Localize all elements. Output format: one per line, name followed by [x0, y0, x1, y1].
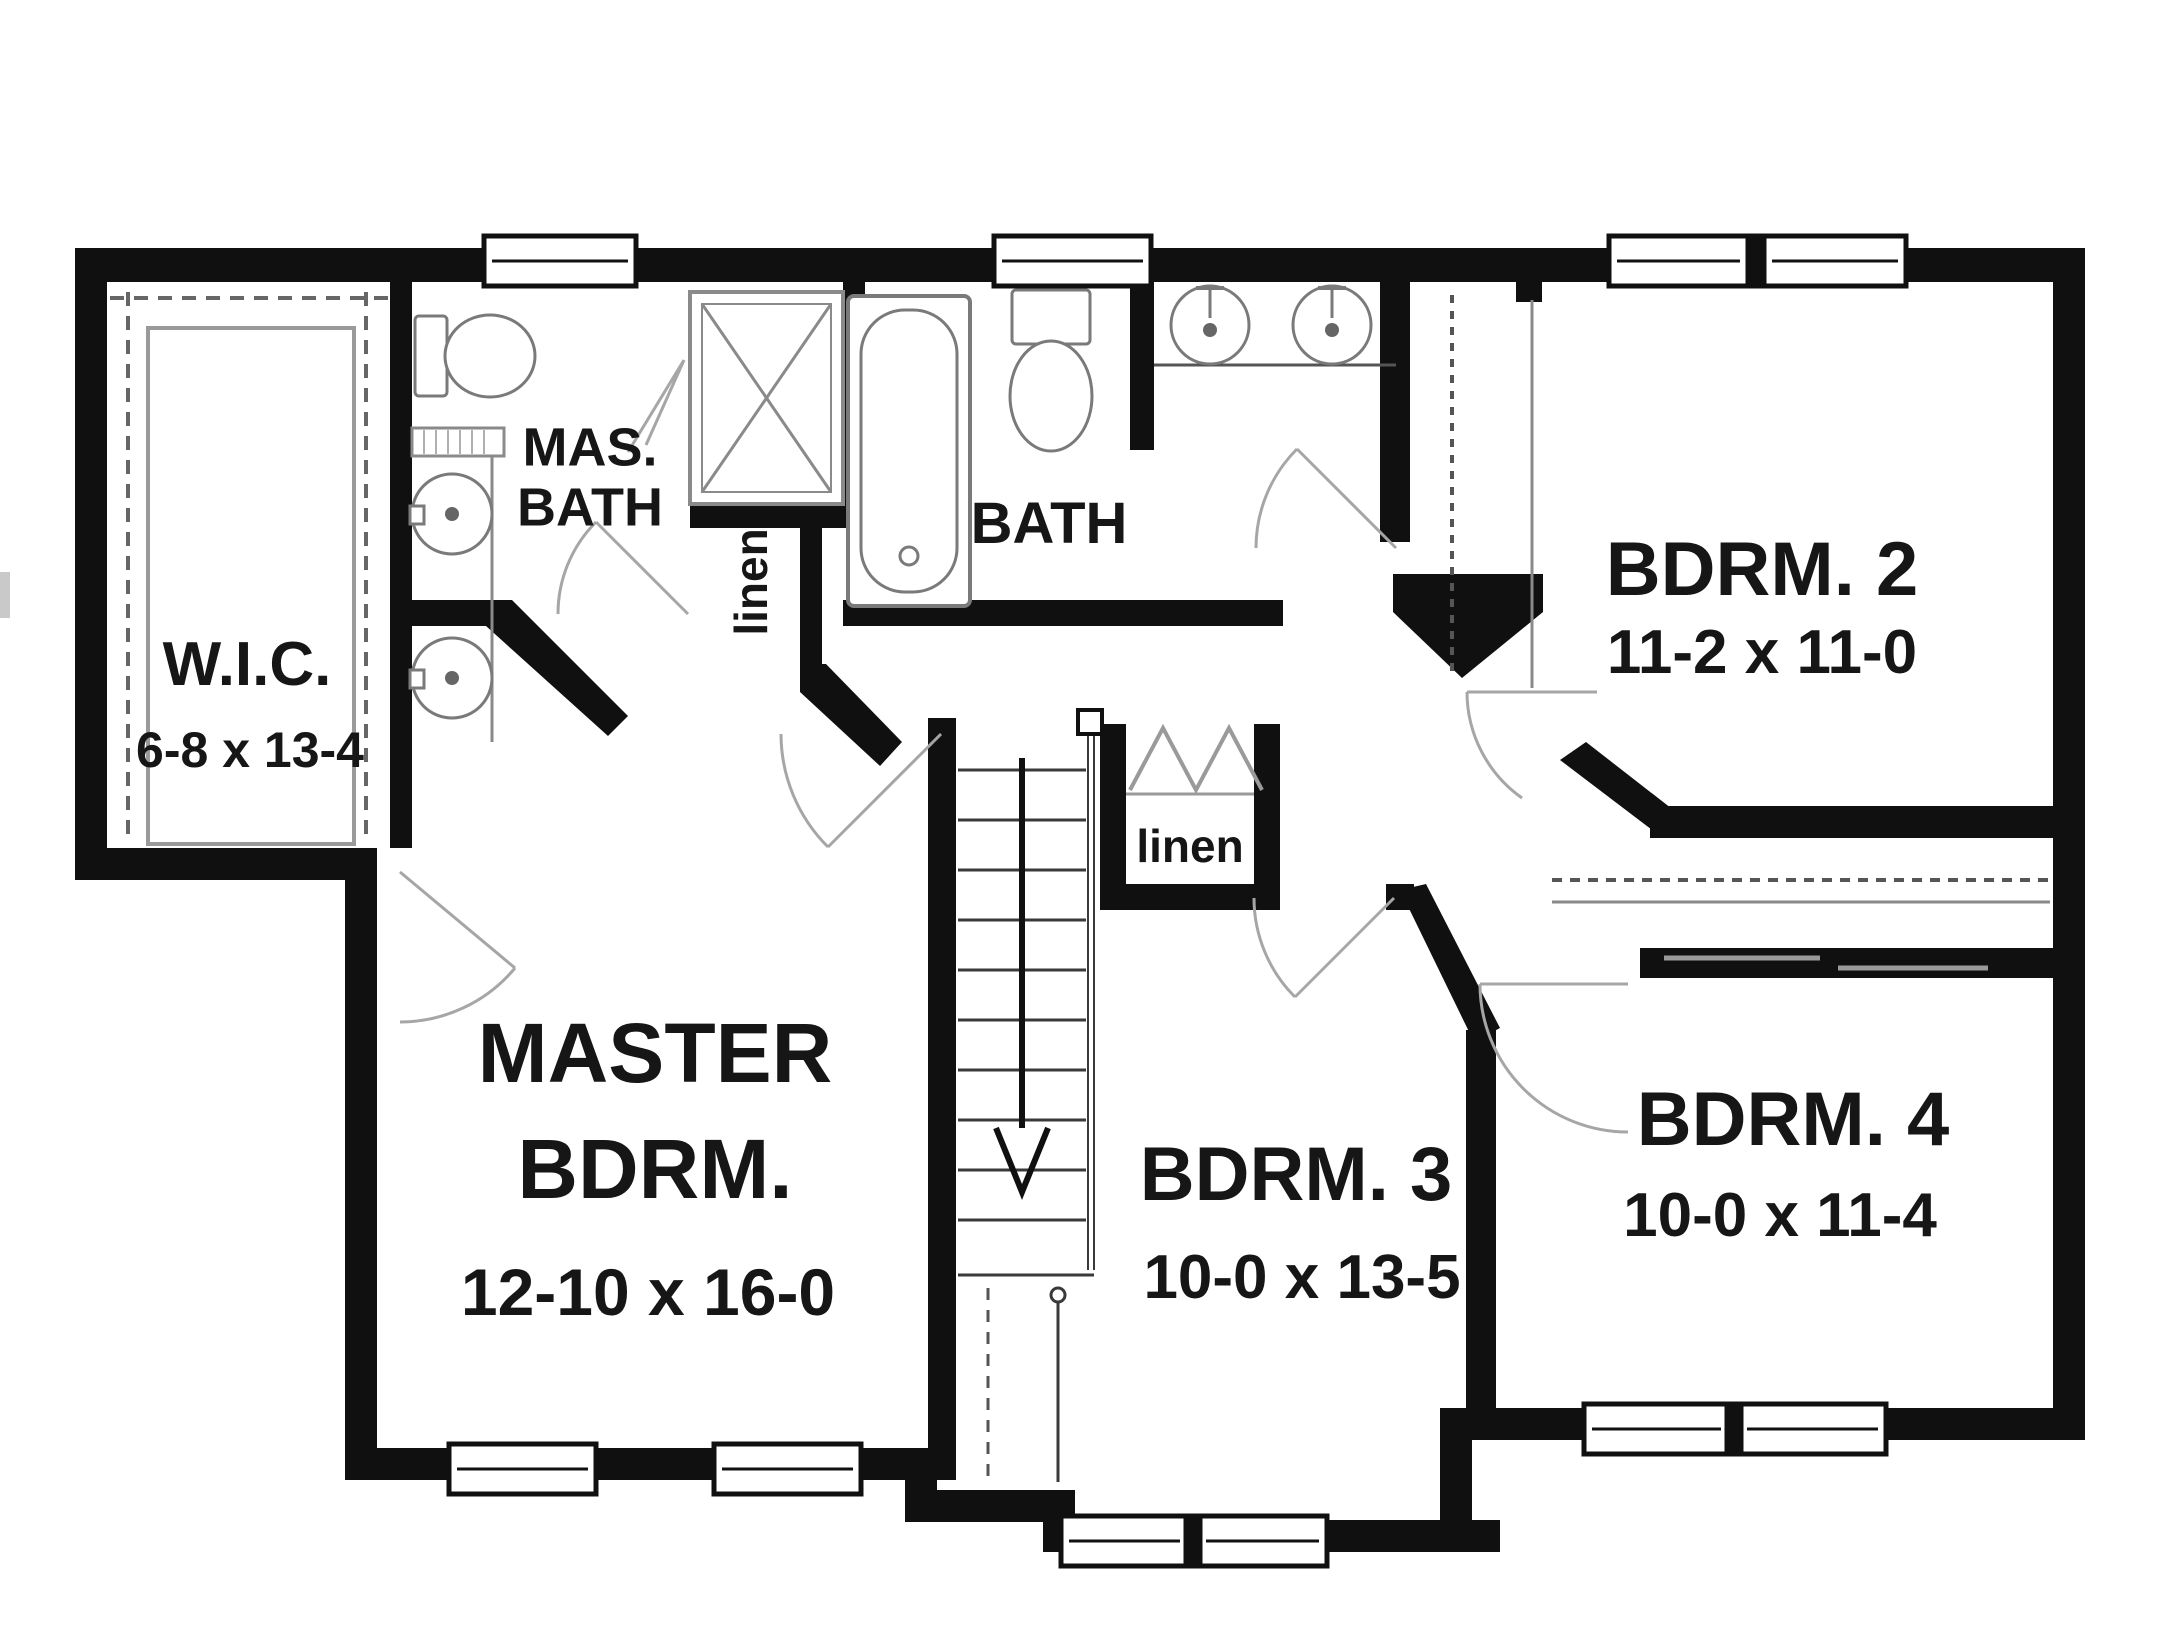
towel-bar [412, 428, 504, 456]
window-bdrm4-double [1584, 1404, 1886, 1454]
room-label-bdrm2: BDRM. 2 [1606, 532, 1918, 608]
room-label-bdrm4: BDRM. 4 [1637, 1082, 1949, 1158]
wall-stair-left [928, 718, 956, 1480]
room-dims-master: 12-10 x 16-0 [461, 1259, 835, 1325]
window-top-masbath [484, 236, 636, 286]
room-label-bdrm3: BDRM. 3 [1140, 1137, 1452, 1213]
room-label-bath: BATH [971, 495, 1128, 553]
vanity-masbath [410, 456, 492, 742]
scan-artifact [0, 572, 10, 618]
room-label-mas-bath: MAS. BATH [517, 418, 663, 539]
room-label-master-line2: BDRM. [478, 1112, 833, 1228]
bathtub-fixture [848, 296, 970, 606]
wall-master-left [345, 848, 377, 1480]
toilet-fixture-bath [1010, 290, 1092, 451]
stairs [958, 710, 1102, 1482]
wall-under-shower [690, 504, 865, 528]
wall-masbath-bottom [412, 600, 486, 626]
vanity-bath [1154, 286, 1396, 365]
room-label-master-line1: MASTER [478, 996, 833, 1112]
wall-bdrm2-bottom [1650, 806, 2055, 838]
room-dims-wic: 6-8 x 13-4 [136, 725, 364, 775]
door-bdrm2 [1467, 692, 1597, 798]
window-top-bath [994, 236, 1151, 286]
wall-wic-right [390, 282, 412, 848]
wall-linen2-right [1254, 724, 1280, 910]
window-master-2 [714, 1444, 861, 1494]
window-master-1 [449, 1444, 596, 1494]
wall-closet2-pentagon [1393, 574, 1543, 678]
door-bdrm3 [1254, 898, 1394, 997]
closet-label-linen-center: linen [1136, 823, 1243, 869]
wall-right [2053, 248, 2085, 1440]
room-dims-bdrm4: 10-0 x 11-4 [1623, 1185, 1937, 1247]
window-bdrm3-double [1061, 1516, 1327, 1566]
closet-label-linen-upper: linen [728, 528, 774, 635]
wall-wic-bottom [75, 848, 375, 880]
linen2-bifold-doors [1126, 728, 1262, 794]
room-dims-bdrm2: 11-2 x 11-0 [1607, 622, 1917, 684]
stair-newel [1078, 710, 1102, 734]
room-label-wic: W.I.C. [163, 634, 332, 696]
stair-arrow-head [996, 1128, 1048, 1192]
room-label-master: MASTER BDRM. [478, 996, 833, 1228]
door-bath [1256, 449, 1396, 548]
wall-masbath-diagonal [486, 600, 628, 736]
room-label-mas-bath-line1: MAS. [517, 418, 663, 478]
wall-partition-bath [1130, 282, 1154, 450]
wall-closet2-cap [1516, 282, 1542, 302]
stair-well-rail-cap [1051, 1288, 1065, 1302]
room-dims-bdrm3: 10-0 x 13-5 [1143, 1247, 1460, 1309]
door-master-bdrm [781, 734, 941, 847]
shower-fixture [690, 292, 843, 504]
floor-plan-drawing [0, 0, 2160, 1649]
wall-left [75, 248, 107, 880]
exterior-walls [75, 248, 2085, 1552]
wall-bdrm34-divider [1466, 1030, 1496, 1410]
wall-closet4-bottom [1640, 948, 2055, 978]
wall-bath-right [1380, 282, 1410, 542]
wall-linen2-left [1100, 724, 1126, 910]
wall-linen1-diagonal [800, 664, 902, 766]
door-bdrm4 [1480, 984, 1628, 1132]
wall-linen1-right [800, 528, 822, 684]
room-label-mas-bath-line2: BATH [517, 478, 663, 538]
window-top-bdrm2-double [1609, 236, 1906, 286]
toilet-fixture-masbath [415, 315, 535, 397]
floor-plan-page: W.I.C. 6-8 x 13-4 MAS. BATH BATH BDRM. 2… [0, 0, 2160, 1649]
closet-slider-block [1820, 948, 1838, 978]
